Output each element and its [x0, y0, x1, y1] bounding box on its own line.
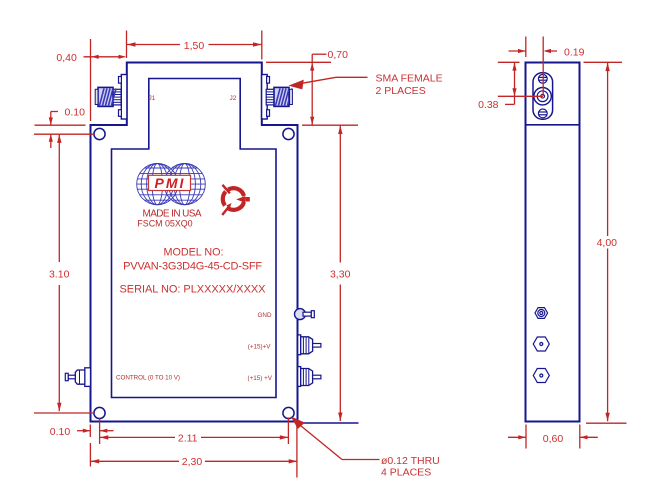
svg-text:MODEL NO:: MODEL NO:	[164, 247, 224, 259]
svg-text:2,30: 2,30	[182, 456, 203, 468]
svg-text:3.10: 3.10	[49, 269, 70, 281]
svg-text:4 PLACES: 4 PLACES	[381, 466, 431, 478]
svg-text:3,30: 3,30	[330, 269, 351, 281]
svg-text:SERIAL NO: PLXXXXX/XXXX: SERIAL NO: PLXXXXX/XXXX	[120, 284, 267, 296]
svg-text:PMI: PMI	[155, 175, 186, 191]
svg-text:SMA FEMALE: SMA FEMALE	[376, 73, 443, 85]
svg-text:0.10: 0.10	[65, 106, 86, 118]
svg-text:(+15)+V: (+15)+V	[248, 344, 272, 351]
svg-text:1,50: 1,50	[184, 40, 205, 52]
svg-text:ø0.12 THRU: ø0.12 THRU	[381, 455, 440, 467]
svg-text:0.10: 0.10	[50, 426, 71, 438]
svg-text:CONTROL (0 TO 10 V): CONTROL (0 TO 10 V)	[116, 375, 180, 382]
svg-text:0.19: 0.19	[564, 47, 585, 59]
svg-text:FSCM 05XQ0: FSCM 05XQ0	[137, 219, 192, 229]
svg-text:2.11: 2.11	[178, 433, 198, 445]
svg-text:0,40: 0,40	[56, 52, 77, 64]
svg-text:PVVAN-3G3D4G-45-CD-SFF: PVVAN-3G3D4G-45-CD-SFF	[123, 261, 262, 273]
svg-text:2 PLACES: 2 PLACES	[376, 85, 426, 97]
svg-text:0,70: 0,70	[328, 49, 349, 61]
svg-text:4,00: 4,00	[597, 237, 618, 249]
svg-text:0.38: 0.38	[478, 99, 499, 111]
svg-text:GND: GND	[258, 312, 272, 319]
svg-text:J2: J2	[230, 95, 237, 102]
svg-text:J1: J1	[149, 95, 156, 102]
svg-text:(+15) +V: (+15) +V	[247, 375, 272, 382]
svg-text:0,60: 0,60	[543, 433, 564, 445]
